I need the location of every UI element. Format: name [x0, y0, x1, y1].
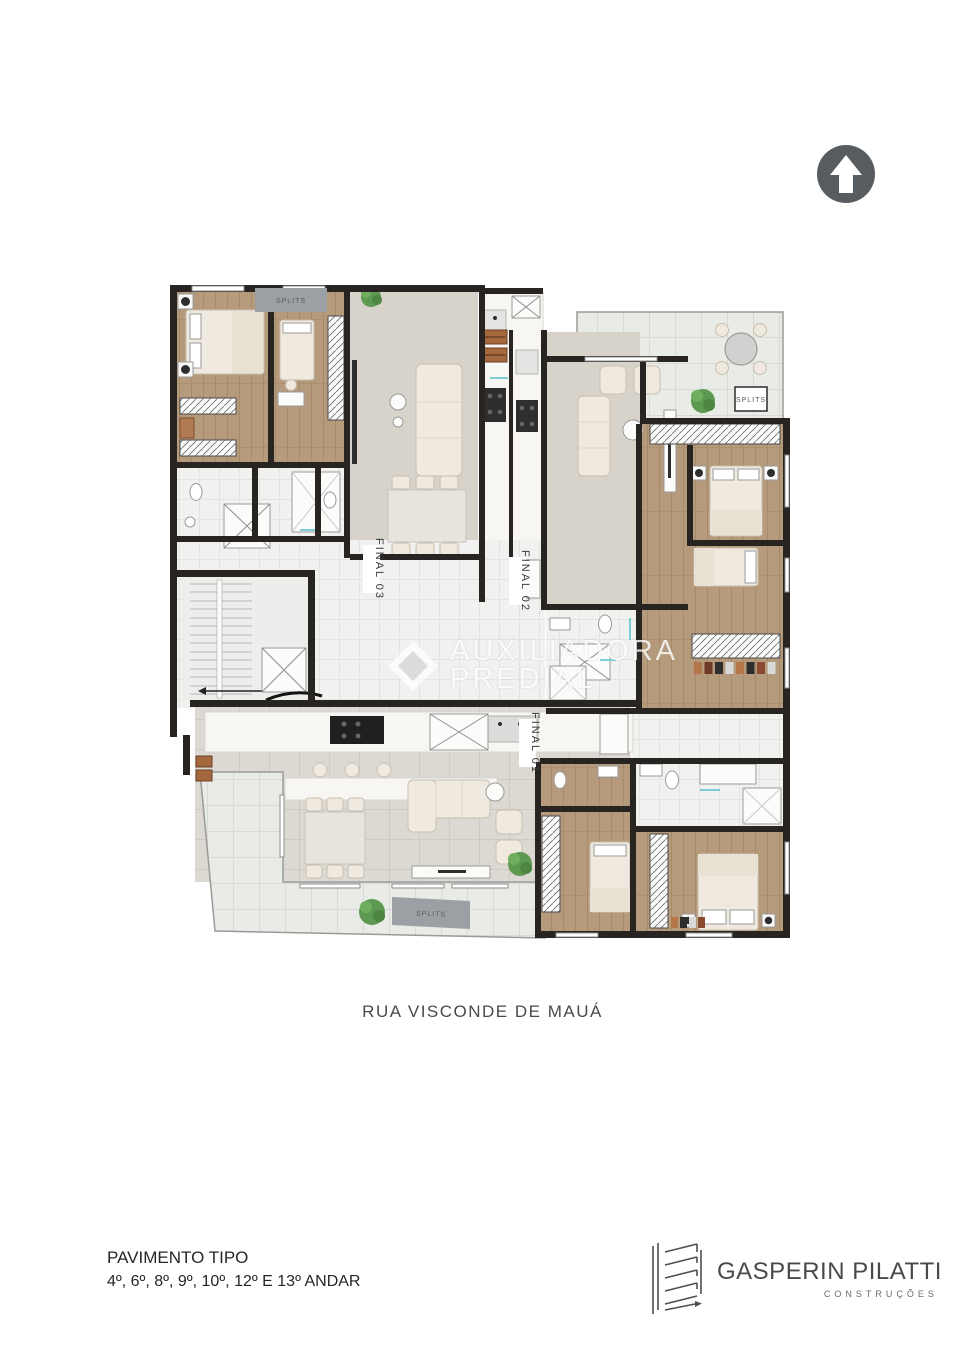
- footer-subtitle: 4º, 6º, 8º, 9º, 10º, 12º E 13º ANDAR: [107, 1273, 360, 1291]
- brand-logo: GASPERIN PILATTI CONSTRUÇÕES: [645, 1232, 942, 1320]
- footer-title: PAVIMENTO TIPO: [107, 1248, 360, 1268]
- unit-label-final-02: FINAL 02: [519, 550, 531, 612]
- splits-label-terrace: SPLITS: [736, 397, 766, 404]
- north-arrow: [817, 145, 875, 203]
- splits-label-top: SPLITS: [276, 298, 306, 305]
- up-arrow-icon: [817, 145, 875, 203]
- footer-block: PAVIMENTO TIPO 4º, 6º, 8º, 9º, 10º, 12º …: [107, 1248, 360, 1291]
- street-label: RUA VISCONDE DE MAUÁ: [0, 1002, 965, 1022]
- brand-tagline: CONSTRUÇÕES: [717, 1289, 942, 1299]
- building-icon: [645, 1232, 709, 1320]
- splits-label-bottom: SPLITS: [416, 910, 446, 918]
- unit-label-final-01: FINAL 01: [529, 712, 541, 774]
- unit-label-final-03: FINAL 03: [373, 538, 385, 600]
- floor-plan: SPLITS SPLITS SPLITS FINAL 03 FINAL 02 F…: [0, 0, 965, 1366]
- brand-name: GASPERIN PILATTI: [717, 1258, 942, 1286]
